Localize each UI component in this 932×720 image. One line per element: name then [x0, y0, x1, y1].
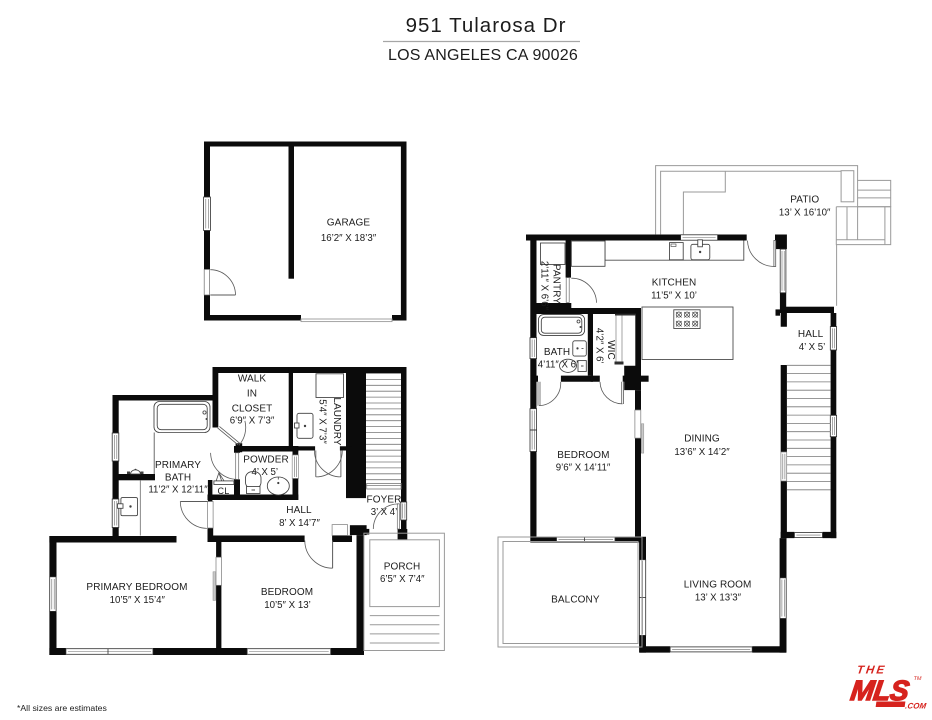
svg-text:DINING: DINING — [684, 434, 720, 445]
svg-text:BEDROOM: BEDROOM — [261, 587, 313, 598]
svg-text:PATIO: PATIO — [790, 195, 819, 206]
svg-text:3’ X 4’: 3’ X 4’ — [371, 507, 398, 518]
svg-text:BEDROOM: BEDROOM — [557, 450, 609, 461]
svg-text:9’6″ X 14’11″: 9’6″ X 14’11″ — [556, 463, 611, 474]
svg-text:BATH: BATH — [544, 347, 570, 358]
svg-text:4’ X 5’: 4’ X 5’ — [799, 342, 826, 353]
svg-text:2’11″ X 6’6″: 2’11″ X 6’6″ — [539, 261, 550, 311]
svg-text:FOYER: FOYER — [367, 495, 402, 506]
svg-text:IN: IN — [247, 388, 257, 399]
svg-text:5’4″ X 7’3″: 5’4″ X 7’3″ — [317, 399, 328, 444]
svg-text:BATH: BATH — [165, 473, 191, 484]
svg-text:13’6″ X 14’2″: 13’6″ X 14’2″ — [674, 447, 730, 458]
svg-text:HALL: HALL — [286, 505, 312, 516]
svg-text:951 Tularosa Dr: 951 Tularosa Dr — [406, 14, 567, 37]
svg-text:10’5″ X 15’4″: 10’5″ X 15’4″ — [110, 595, 166, 606]
svg-text:WIC: WIC — [605, 340, 616, 360]
svg-text:HALL: HALL — [798, 329, 824, 340]
svg-text:10’5″ X 13’: 10’5″ X 13’ — [264, 600, 311, 611]
svg-text:4’2″ X 6’: 4’2″ X 6’ — [594, 328, 605, 364]
svg-text:11’5″ X 10’: 11’5″ X 10’ — [651, 290, 697, 301]
svg-text:CLOSET: CLOSET — [232, 403, 273, 414]
svg-text:6’5″ X 7’4″: 6’5″ X 7’4″ — [380, 574, 425, 585]
svg-text:8’ X 14’7″: 8’ X 14’7″ — [279, 518, 320, 529]
svg-text:KITCHEN: KITCHEN — [652, 278, 697, 289]
svg-text:GARAGE: GARAGE — [327, 218, 371, 229]
svg-text:LIVING ROOM: LIVING ROOM — [684, 580, 752, 591]
svg-text:LOS ANGELES CA 90026: LOS ANGELES CA 90026 — [388, 47, 578, 64]
svg-text:16’2″ X 18’3″: 16’2″ X 18’3″ — [321, 233, 377, 244]
svg-text:PRIMARY: PRIMARY — [155, 460, 201, 471]
svg-text:13’ X 16’10″: 13’ X 16’10″ — [779, 207, 831, 218]
svg-text:11’2″ X 12’11″: 11’2″ X 12’11″ — [148, 485, 208, 496]
svg-text:PORCH: PORCH — [384, 561, 421, 572]
svg-text:MLS: MLS — [849, 675, 912, 706]
svg-text:PRIMARY BEDROOM: PRIMARY BEDROOM — [86, 582, 187, 593]
svg-text:.COM: .COM — [905, 702, 927, 711]
svg-text:4’11″ X 6’: 4’11″ X 6’ — [538, 359, 578, 370]
svg-text:*All sizes are estimates: *All sizes are estimates — [17, 703, 107, 713]
svg-text:CL: CL — [217, 486, 229, 496]
svg-text:LAUNDRY: LAUNDRY — [331, 397, 342, 446]
svg-text:WALK: WALK — [238, 373, 267, 384]
svg-text:4’ X 5’: 4’ X 5’ — [252, 467, 279, 478]
svg-text:PANTRY: PANTRY — [551, 264, 562, 304]
svg-text:POWDER: POWDER — [243, 454, 289, 465]
svg-text:6’9″ X 7’3″: 6’9″ X 7’3″ — [230, 416, 275, 427]
svg-text:TM: TM — [913, 676, 922, 682]
svg-text:BALCONY: BALCONY — [551, 595, 600, 606]
svg-text:13’ X 13’3″: 13’ X 13’3″ — [695, 593, 742, 604]
